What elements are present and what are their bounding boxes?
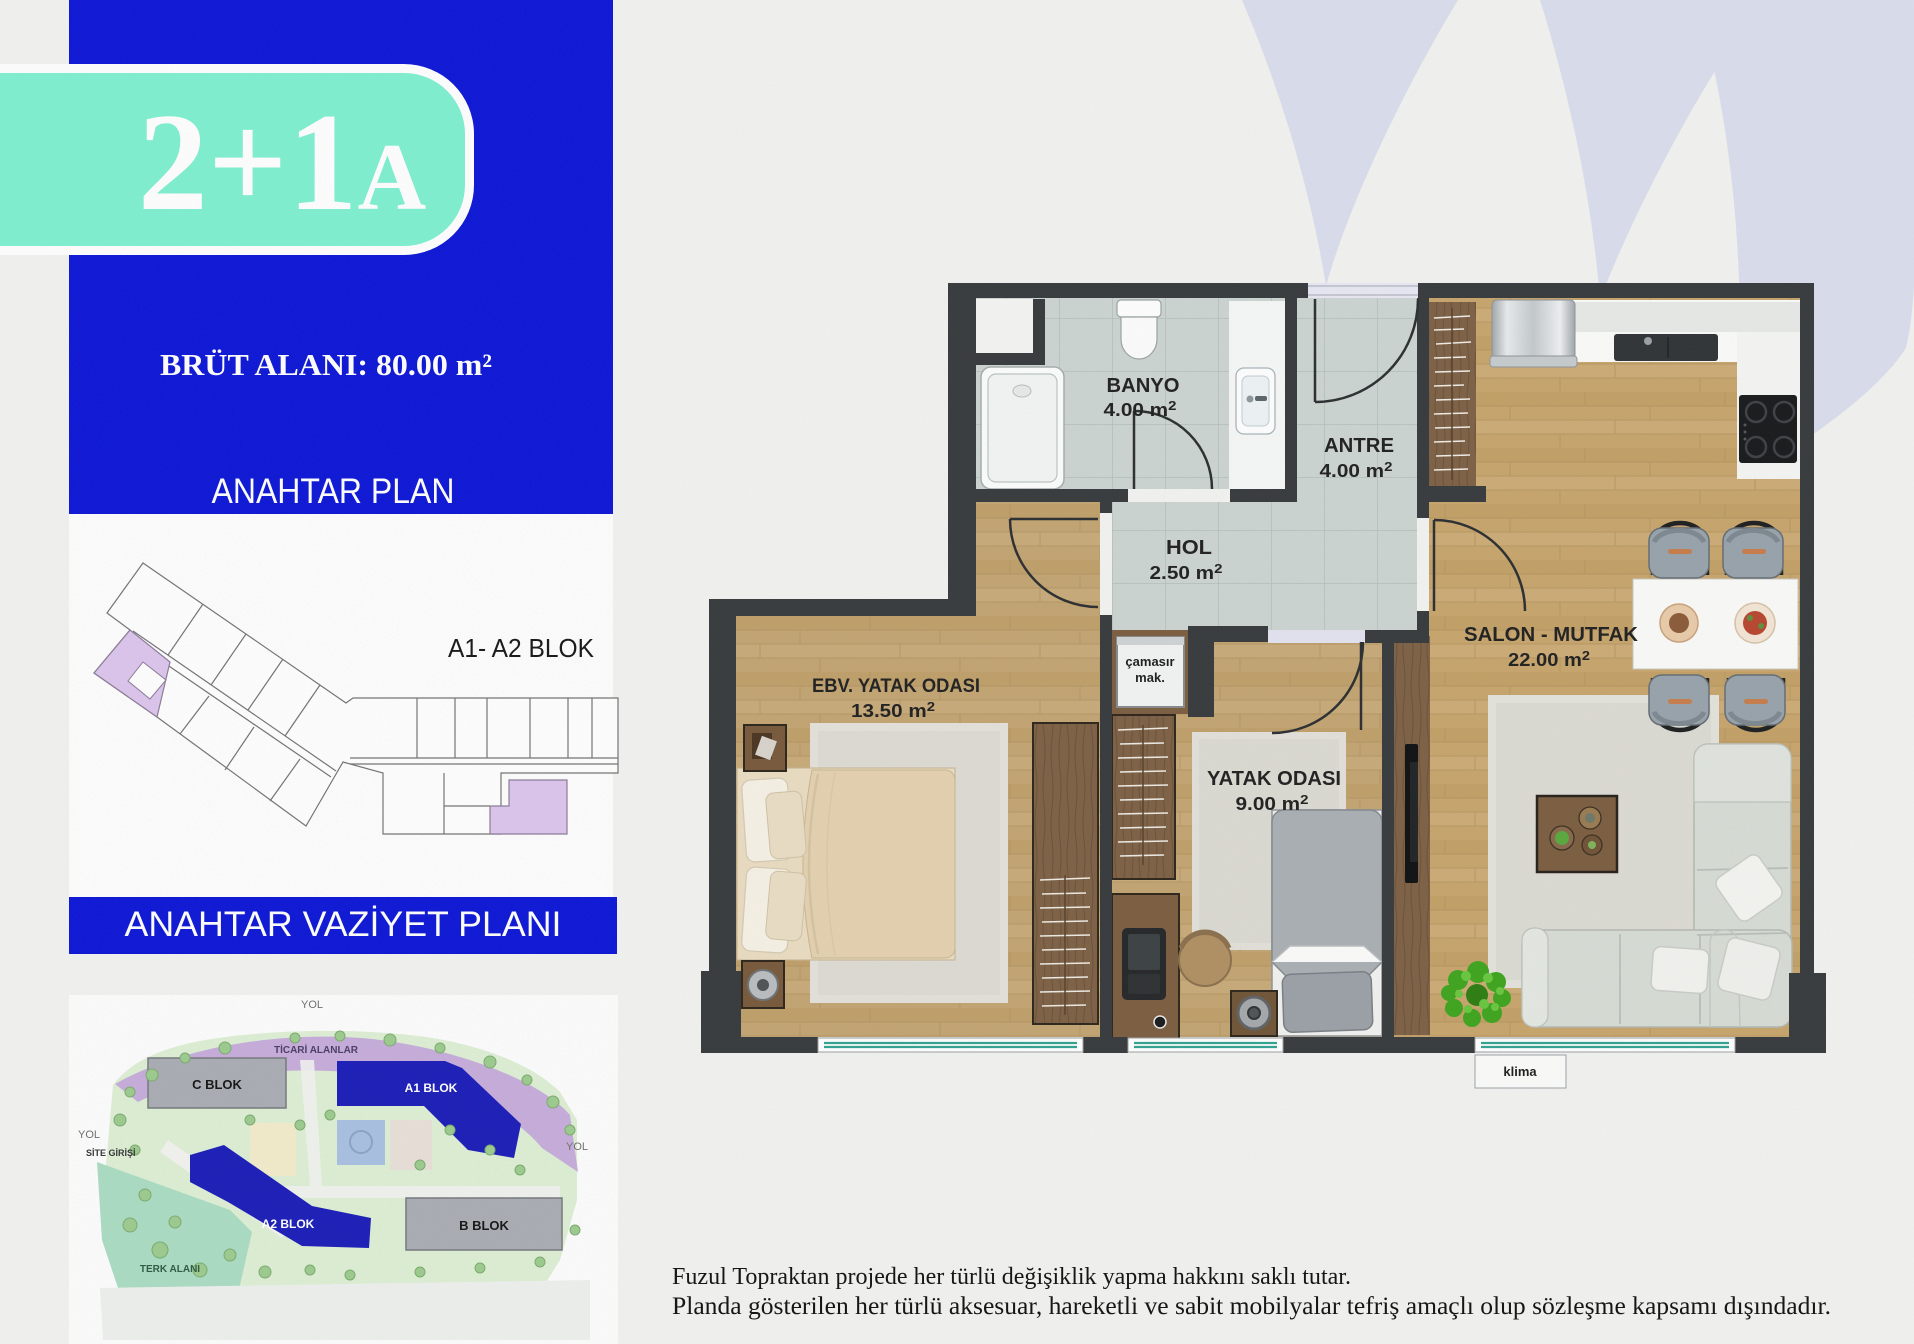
svg-text:Planda gösterilen her türlü ak: Planda gösterilen her türlü aksesuar, ha… xyxy=(672,1293,1831,1320)
svg-text:2.50 m2: 2.50 m2 xyxy=(1150,561,1223,583)
svg-text:YOL: YOL xyxy=(301,999,323,1011)
svg-text:A1 BLOK: A1 BLOK xyxy=(405,1081,458,1095)
svg-text:TERK ALANI: TERK ALANI xyxy=(140,1264,200,1275)
svg-text:BANYO: BANYO xyxy=(1107,375,1180,397)
svg-text:C BLOK: C BLOK xyxy=(192,1077,242,1092)
svg-text:B BLOK: B BLOK xyxy=(459,1218,509,1233)
svg-text:YATAK ODASI: YATAK ODASI xyxy=(1207,768,1341,790)
svg-text:4.00 m2: 4.00 m2 xyxy=(1320,459,1393,481)
svg-text:SALON - MUTFAK: SALON - MUTFAK xyxy=(1464,624,1639,646)
svg-text:klima: klima xyxy=(1503,1064,1537,1079)
svg-text:HOL: HOL xyxy=(1166,537,1212,559)
svg-text:SİTE GİRİŞİ: SİTE GİRİŞİ xyxy=(86,1148,136,1158)
svg-text:9.00 m2: 9.00 m2 xyxy=(1236,792,1309,814)
svg-text:Fuzul Topraktan projede her tü: Fuzul Topraktan projede her türlü değişi… xyxy=(672,1264,1351,1290)
svg-text:YOL: YOL xyxy=(78,1129,100,1141)
svg-text:13.50 m2: 13.50 m2 xyxy=(851,699,935,721)
svg-text:ANAHTAR VAZİYET PLANI: ANAHTAR VAZİYET PLANI xyxy=(125,905,562,944)
svg-text:YOL: YOL xyxy=(566,1141,588,1153)
svg-text:EBV. YATAK ODASI: EBV. YATAK ODASI xyxy=(812,676,980,697)
svg-text:4.00 m2: 4.00 m2 xyxy=(1104,398,1177,420)
svg-text:22.00 m2: 22.00 m2 xyxy=(1508,648,1590,670)
svg-text:çamasır: çamasır xyxy=(1125,654,1174,669)
svg-text:mak.: mak. xyxy=(1135,670,1165,685)
svg-text:TİCARİ ALANLAR: TİCARİ ALANLAR xyxy=(274,1043,359,1056)
svg-text:ANAHTAR PLAN: ANAHTAR PLAN xyxy=(212,472,455,511)
svg-text:BRÜT ALANI: 80.00 m²: BRÜT ALANI: 80.00 m² xyxy=(160,347,492,382)
svg-text:A2 BLOK: A2 BLOK xyxy=(262,1217,315,1231)
svg-text:ANTRE: ANTRE xyxy=(1324,435,1394,457)
svg-text:A1- A2 BLOK: A1- A2 BLOK xyxy=(448,633,595,663)
